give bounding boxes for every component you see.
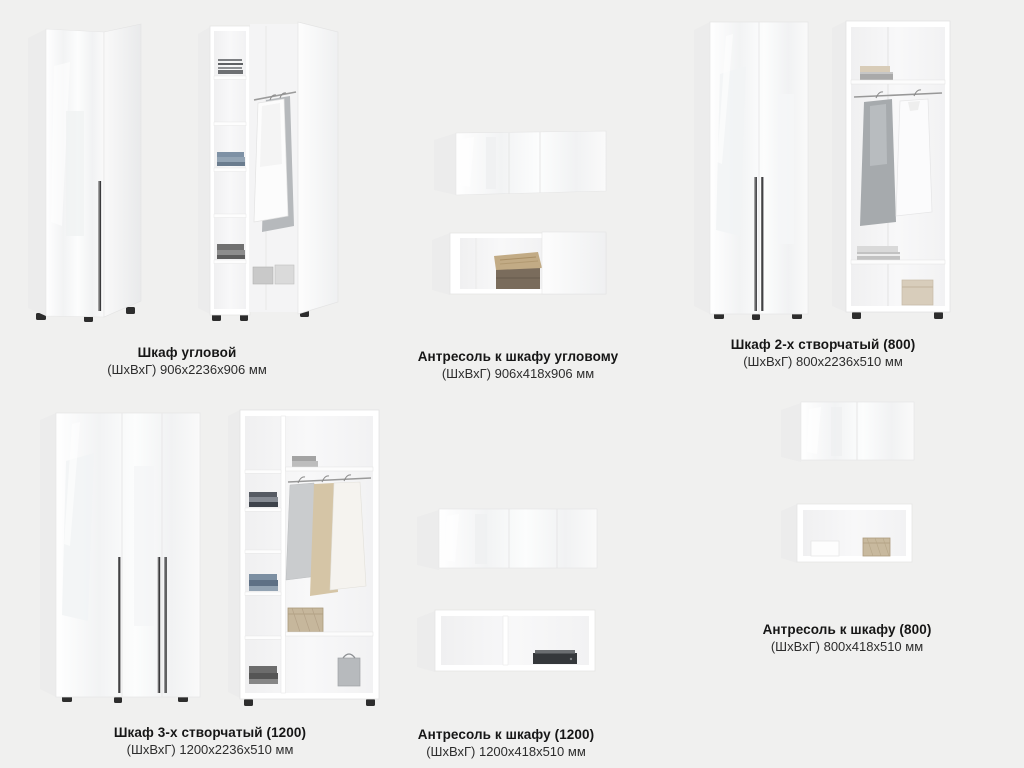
corner-mezzanine-caption: Антресоль к шкафу угловому (ШхВхГ) 906х4… <box>376 348 660 382</box>
mezzanine-800-caption: Антресоль к шкафу (800) (ШхВхГ) 800х418х… <box>705 621 989 655</box>
product-title: Шкаф угловой <box>44 344 330 361</box>
product-dimensions: (ШхВхГ) 800х2236х510 мм <box>681 353 965 370</box>
product-title: Антресоль к шкафу (800) <box>705 621 989 638</box>
product-dimensions: (ШхВхГ) 1200х418х510 мм <box>364 743 648 760</box>
product-title: Антресоль к шкафу (1200) <box>364 726 648 743</box>
wardrobe-2-door-open-image <box>830 14 956 324</box>
corner-wardrobe-closed-image <box>26 16 144 326</box>
corner-wardrobe-open-image <box>196 14 342 326</box>
corner-mezzanine-closed-image <box>432 129 608 199</box>
mezzanine-800-open-image <box>779 500 916 567</box>
product-title: Антресоль к шкафу угловому <box>376 348 660 365</box>
mezzanine-1200-open-image <box>415 606 599 676</box>
product-dimensions: (ШхВхГ) 800х418х510 мм <box>705 638 989 655</box>
corner-mezzanine-open-image <box>430 228 608 300</box>
wardrobe-3-door-open-image <box>226 404 383 708</box>
catalog-page: Шкаф угловой (ШхВхГ) 906х2236х906 мм <box>0 0 1024 768</box>
mezzanine-1200-caption: Антресоль к шкафу (1200) (ШхВхГ) 1200х41… <box>364 726 648 760</box>
wardrobe-3-door-closed-image <box>38 406 202 706</box>
wardrobe-2-door-closed-image <box>692 14 811 324</box>
product-dimensions: (ШхВхГ) 906х2236х906 мм <box>44 361 330 378</box>
product-title: Шкаф 2-х створчатый (800) <box>681 336 965 353</box>
mezzanine-1200-closed-image <box>415 506 599 574</box>
product-title: Шкаф 3-х створчатый (1200) <box>68 724 352 741</box>
product-dimensions: (ШхВхГ) 906х418х906 мм <box>376 365 660 382</box>
product-dimensions: (ШхВхГ) 1200х2236х510 мм <box>68 741 352 758</box>
mezzanine-800-closed-image <box>779 400 916 467</box>
wardrobe-2-door-caption: Шкаф 2-х створчатый (800) (ШхВхГ) 800х22… <box>681 336 965 370</box>
corner-wardrobe-caption: Шкаф угловой (ШхВхГ) 906х2236х906 мм <box>44 344 330 378</box>
wardrobe-3-door-caption: Шкаф 3-х створчатый (1200) (ШхВхГ) 1200х… <box>68 724 352 758</box>
